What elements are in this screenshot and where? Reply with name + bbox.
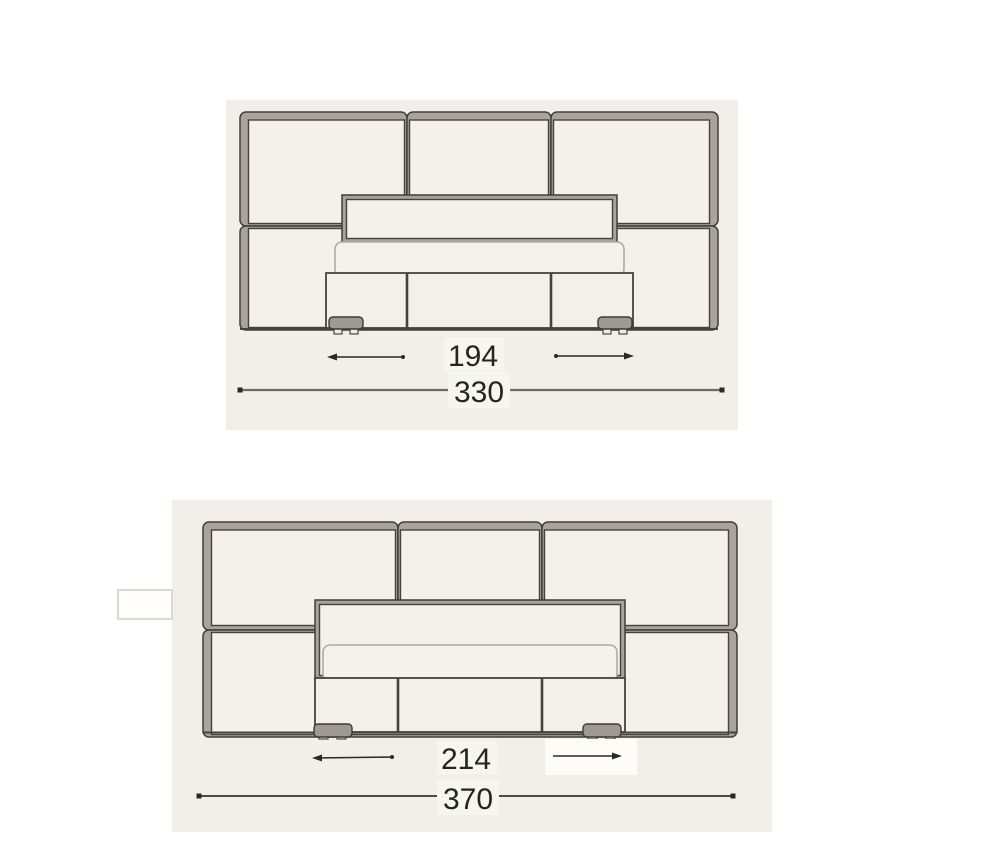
bed-base	[315, 678, 625, 732]
cropped-side-element	[118, 590, 172, 619]
foot-pad	[314, 724, 352, 737]
dimension-line-left	[315, 757, 392, 758]
foot-pad	[329, 317, 363, 329]
dimension-end-square	[720, 388, 725, 393]
foot-right	[583, 724, 621, 739]
edit-white-patch	[545, 739, 637, 775]
bed-mattress	[335, 242, 624, 276]
inner-dimension-label: 214	[441, 743, 491, 776]
bed-base-panel	[326, 273, 633, 328]
overall-dimension-label: 330	[454, 376, 504, 409]
bed-base-panel	[315, 678, 625, 732]
dimension-dot	[390, 755, 394, 759]
foot-pad	[583, 724, 621, 737]
dimension-end-square	[197, 794, 202, 799]
headboard-panel	[347, 200, 613, 239]
foot-pad	[598, 317, 632, 329]
inner-dimension-label: 194	[448, 340, 498, 373]
diagram-layout-330: 194 330	[226, 100, 738, 430]
diagram-layout-370: 214 370	[118, 500, 772, 832]
dimension-dot	[554, 354, 558, 358]
dimension-end-square	[731, 794, 736, 799]
drawing-page: 194 330	[0, 0, 1000, 849]
bed-mattress	[323, 645, 617, 681]
dimension-dot	[401, 355, 405, 359]
bed-base	[326, 273, 633, 328]
headboard	[342, 195, 617, 243]
foot-left	[314, 724, 352, 739]
drawing-canvas: 194 330	[0, 0, 1000, 849]
overall-dimension-label: 370	[443, 783, 493, 816]
dimension-end-square	[238, 388, 243, 393]
